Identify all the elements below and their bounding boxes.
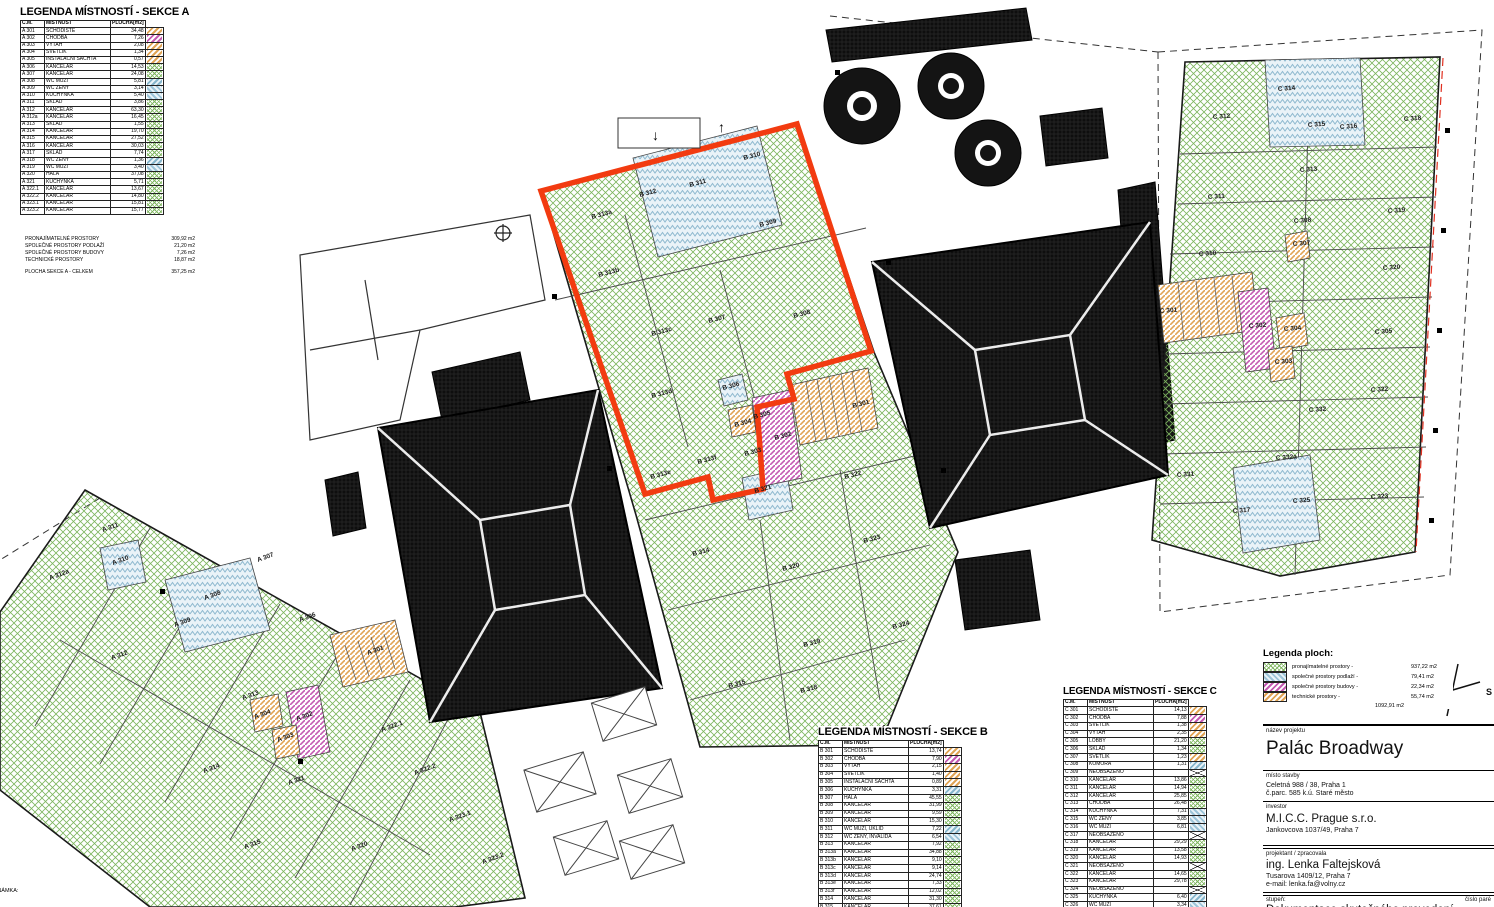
legend-c-title: LEGENDA MÍSTNOSTÍ - SEKCE C (1063, 686, 1217, 697)
room-row: A 315KANCELÁŘ27,52 (21, 136, 164, 143)
room-label: C 308 (1294, 217, 1312, 225)
room-row: B 313aKANCELÁŘ34,88 (819, 849, 962, 857)
col-plocha: PLOCHA[m2] (111, 21, 146, 28)
investor-address: Jankovcova 1037/49, Praha 7 (1266, 827, 1359, 834)
hatch-swatch (1190, 770, 1205, 777)
room-row: C 325KUCHYŇKA6,40 (1064, 894, 1207, 902)
room-row: A 313SKLAD1,55 (21, 121, 164, 128)
hatch-swatch (147, 143, 162, 149)
hatch-swatch (147, 136, 162, 142)
hatch-swatch (945, 896, 960, 903)
hatch-swatch (1190, 707, 1205, 714)
room-row: C 316WC MUŽI6,81 (1064, 824, 1207, 832)
hatch-swatch (945, 818, 960, 825)
designer-label: projektant / zpracovala (1266, 851, 1326, 857)
room-row: C 303SVĚTLÍK1,38 (1064, 722, 1207, 730)
room-row: A 321KUCHYŇKA5,71 (21, 179, 164, 186)
legend-section-a: LEGENDA MÍSTNOSTÍ - SEKCE A Č.M. MÍSTNOS… (20, 6, 189, 215)
room-row: C 304VÝTAH2,35 (1064, 730, 1207, 738)
hatch-swatch (945, 826, 960, 833)
room-row: B 313eKANCELÁŘ7,33 (819, 880, 962, 888)
north-label: S (1486, 687, 1492, 697)
legend-section-c: LEGENDA MÍSTNOSTÍ - SEKCE C Č.M. MÍSTNOS… (1063, 686, 1217, 907)
room-row: C 321NEOBSAZENO (1064, 863, 1207, 871)
room-label: C 332a (1276, 454, 1298, 462)
summary-total: PLOCHA SEKCE A - CELKEM357,25 m2 (25, 269, 195, 276)
hatch-swatch (1190, 723, 1205, 730)
room-row: A 312KANCELÁŘ63,30 (21, 107, 164, 114)
hatch-swatch (945, 881, 960, 888)
arrow-up-icon: ↑ (718, 119, 725, 135)
hatch-swatch (147, 172, 162, 178)
room-label: C 331 (1177, 471, 1195, 479)
room-row: C 308KOMORA1,31 (1064, 761, 1207, 769)
hatch-swatch (1190, 848, 1205, 855)
room-row: A 307KANCELÁŘ24,08 (21, 71, 164, 78)
area-legend: Legenda ploch: pronajímatelné prostory -… (1263, 648, 1453, 709)
room-row: A 303VÝTAH2,08 (21, 42, 164, 49)
area-legend-total: 1092,91 m2 (1375, 703, 1453, 709)
hatch-swatch (1190, 863, 1205, 870)
hatch-swatch (945, 857, 960, 864)
room-label: C 317 (1233, 507, 1251, 515)
hatch-swatch (945, 803, 960, 810)
hatch-swatch (1190, 879, 1205, 886)
hatch-swatch (1190, 894, 1205, 901)
room-label: C 303 (1275, 358, 1293, 366)
hatch-swatch (147, 57, 162, 63)
room-row: C 311KANCELÁŘ14,94 (1064, 785, 1207, 793)
room-row: A 320HALA37,08 (21, 171, 164, 178)
room-row: B 313fKANCELÁŘ12,02 (819, 888, 962, 896)
room-row: C 323KANCELÁŘ29,78 (1064, 878, 1207, 886)
arrow-down-icon: ↓ (652, 127, 659, 143)
room-row: B 302CHODBA7,90 (819, 755, 962, 763)
room-row: B 313dKANCELÁŘ24,74 (819, 872, 962, 880)
room-row: A 319WC MUŽI3,40 (21, 164, 164, 171)
room-row: C 305LOBBY21,20 (1064, 738, 1207, 746)
copy-number-label: číslo paré (1465, 897, 1491, 903)
room-label: C 312 (1213, 113, 1231, 121)
room-row: C 306SKLAD1,34 (1064, 746, 1207, 754)
hatch-swatch (147, 79, 162, 85)
area-legend-title: Legenda ploch: (1263, 648, 1453, 659)
room-row: C 307SVĚTLÍK1,23 (1064, 753, 1207, 761)
legend-b-title: LEGENDA MÍSTNOSTÍ - SEKCE B (818, 726, 988, 738)
room-label: C 322 (1371, 386, 1389, 394)
entrance-box (618, 118, 700, 148)
floor-plan-canvas: ↓ ↑ S A 311A 310A 312aA 307A 308A 309A 3… (0, 0, 1494, 907)
note-label: POZNÁMKA: (0, 888, 18, 894)
hatch-swatch (1263, 692, 1287, 702)
hatch-swatch (945, 795, 960, 802)
hatch-swatch (147, 165, 162, 171)
hatch-swatch (147, 129, 162, 135)
room-label: C 307 (1293, 240, 1311, 248)
room-row: A 323.1KANCELÁŘ15,81 (21, 200, 164, 207)
site-address-2: č.parc. 585 k.ú. Staré město (1266, 790, 1354, 797)
room-row: B 313cKANCELÁŘ9,14 (819, 865, 962, 873)
hatch-swatch (1190, 715, 1205, 722)
room-row: A 323.2KANCELÁŘ15,77 (21, 207, 164, 214)
legend-c-table: Č.M. MÍSTNOST PLOCHA[m2] C 301SCHODIŠTĚ1… (1063, 699, 1207, 907)
room-row: C 312KANCELÁŘ25,85 (1064, 792, 1207, 800)
room-row: C 302CHODBA7,88 (1064, 714, 1207, 722)
room-row: C 314KUCHYŇKA7,31 (1064, 808, 1207, 816)
area-legend-row: pronajímatelné prostory -937,22 m2 (1263, 662, 1453, 672)
room-label: C 304 (1284, 325, 1302, 333)
room-row: B 315KANCELÁŘ37,61 (819, 904, 962, 907)
room-label: C 302 (1249, 322, 1267, 330)
hatch-swatch (147, 114, 162, 120)
hatch-swatch (147, 150, 162, 156)
room-row: B 301SCHODIŠTĚ13,74 (819, 748, 962, 756)
site-label: místo stavby (1266, 773, 1300, 779)
hatch-swatch (1190, 887, 1205, 894)
hatch-swatch (945, 842, 960, 849)
hatch-swatch (147, 100, 162, 106)
hatch-swatch (147, 93, 162, 99)
hatch-swatch (1190, 832, 1205, 839)
room-row: A 310KUCHYŇKA5,40 (21, 92, 164, 99)
designer-email: e-mail: lenka.fa@volny.cz (1266, 881, 1345, 888)
summary-row: SPOLEČNÉ PROSTORY BUDOVY7,26 m2 (25, 250, 195, 257)
room-row: B 314KANCELÁŘ31,30 (819, 896, 962, 904)
hatch-swatch (1263, 672, 1287, 682)
room-row: C 318KANCELÁŘ29,29 (1064, 839, 1207, 847)
summary-row: SPOLEČNÉ PROSTORY PODLAŽÍ21,20 m2 (25, 243, 195, 250)
site-address-1: Celetná 988 / 38, Praha 1 (1266, 782, 1346, 789)
room-label: A 307 (256, 551, 275, 564)
hatch-swatch (147, 186, 162, 192)
room-label: C 311 (1208, 193, 1226, 201)
hatch-swatch (1190, 754, 1205, 761)
investor-name: M.I.C.C. Prague s.r.o. (1266, 813, 1377, 825)
room-row: B 313bKANCELÁŘ9,10 (819, 857, 962, 865)
hatch-swatch (945, 779, 960, 786)
hatch-swatch (945, 772, 960, 779)
hatch-swatch (1190, 801, 1205, 808)
hatch-swatch (1190, 738, 1205, 745)
room-row: A 304SVĚTLÍK1,34 (21, 49, 164, 56)
hatch-swatch (147, 28, 162, 34)
skylight-boxes (524, 687, 685, 880)
hatch-swatch (1263, 682, 1287, 692)
hatch-swatch (945, 873, 960, 880)
room-label: C 332 (1309, 406, 1327, 414)
hatch-swatch (1190, 871, 1205, 878)
hatch-swatch (1190, 816, 1205, 823)
room-row: A 312aKANCELÁŘ16,45 (21, 114, 164, 121)
room-row: C 301SCHODIŠTĚ14,13 (1064, 707, 1207, 715)
hatch-swatch (1190, 746, 1205, 753)
project-name-label: název projektu (1266, 728, 1305, 734)
designer-name: ing. Lenka Faltejsková (1266, 859, 1380, 871)
room-label: C 323 (1371, 493, 1389, 501)
room-row: B 310KANCELÁŘ15,30 (819, 818, 962, 826)
room-row: A 302CHODBA7,26 (21, 35, 164, 42)
legend-b-table: Č.M. MÍSTNOST PLOCHA[m2] B 301SCHODIŠTĚ1… (818, 740, 962, 907)
room-row: C 322KANCELÁŘ14,65 (1064, 870, 1207, 878)
room-row: A 314KANCELÁŘ19,70 (21, 128, 164, 135)
designer-address: Tusarova 1409/12, Praha 7 (1266, 873, 1351, 880)
roof-fan-vents (824, 53, 1021, 186)
hatch-swatch (1190, 777, 1205, 784)
hatch-swatch (147, 194, 162, 200)
room-label: C 305 (1375, 328, 1393, 336)
room-row: B 309KANCELÁŘ9,59 (819, 810, 962, 818)
room-label: C 319 (1388, 207, 1406, 215)
hatch-swatch (1190, 840, 1205, 847)
hatch-swatch (1190, 762, 1205, 769)
hatch-swatch (1190, 731, 1205, 738)
room-row: B 304SVĚTLÍK1,40 (819, 771, 962, 779)
hatch-swatch (1190, 809, 1205, 816)
room-row: A 308WC MUŽI5,81 (21, 78, 164, 85)
room-row: B 308KANCELÁŘ31,99 (819, 802, 962, 810)
hatch-swatch (945, 865, 960, 872)
room-row: A 317SKLAD7,74 (21, 150, 164, 157)
room-label: C 313 (1300, 166, 1318, 174)
room-row: C 309NEOBSAZENO (1064, 769, 1207, 777)
legend-a-table: Č.M. MÍSTNOST PLOCHA[m2] A 301SCHODIŠTĚ3… (20, 20, 164, 215)
hatch-swatch (147, 50, 162, 56)
section-a-summary: PRONAJÍMATELNÉ PROSTORY309,92 m2SPOLEČNÉ… (25, 236, 195, 276)
hatch-swatch (147, 71, 162, 77)
hatch-swatch (945, 787, 960, 794)
hatch-swatch (945, 850, 960, 857)
room-row: C 320KANCELÁŘ14,93 (1064, 855, 1207, 863)
room-label: C 301 (1160, 307, 1178, 315)
room-label: C 314 (1278, 85, 1296, 93)
room-label: C 325 (1293, 497, 1311, 505)
room-row: C 315WC ŽENY3,85 (1064, 816, 1207, 824)
summary-row: PRONAJÍMATELNÉ PROSTORY309,92 m2 (25, 236, 195, 243)
room-row: C 310KANCELÁŘ13,86 (1064, 777, 1207, 785)
summary-row: TECHNICKÉ PROSTORY18,87 m2 (25, 257, 195, 264)
hatch-swatch (147, 35, 162, 41)
hatch-swatch (945, 756, 960, 763)
room-row: B 313KANCELÁŘ7,92 (819, 841, 962, 849)
hatch-swatch (147, 179, 162, 185)
col-cm: Č.M. (21, 21, 45, 28)
legend-a-title: LEGENDA MÍSTNOSTÍ - SEKCE A (20, 6, 189, 18)
hatch-swatch (147, 107, 162, 113)
room-row: B 311WC MUŽI, ÚKLID7,22 (819, 826, 962, 834)
room-row: A 316KANCELÁŘ30,03 (21, 143, 164, 150)
hatch-swatch (1190, 824, 1205, 831)
hatch-swatch (147, 201, 162, 207)
room-label: C 310 (1199, 250, 1217, 258)
hatch-swatch (147, 43, 162, 49)
room-row: B 303VÝTAH2,15 (819, 763, 962, 771)
room-row: A 322.1KANCELÁŘ13,67 (21, 186, 164, 193)
investor-label: investor (1266, 804, 1287, 810)
area-legend-row: společné prostory budovy -22,34 m2 (1263, 682, 1453, 692)
hatch-swatch (1190, 793, 1205, 800)
hatch-swatch (147, 86, 162, 92)
room-row: A 311SKLAD3,86 (21, 100, 164, 107)
room-row: A 322.2KANCELÁŘ14,80 (21, 193, 164, 200)
room-row: C 313CHODBA26,48 (1064, 800, 1207, 808)
hatch-swatch (147, 158, 162, 164)
room-label: C 318 (1404, 115, 1422, 123)
hatch-swatch (147, 208, 162, 214)
room-row: B 305INSTALAČNÍ ŠACHTA0,89 (819, 779, 962, 787)
room-row: B 312WC ŽENY, INVALIDA6,54 (819, 833, 962, 841)
room-row: B 307HALA45,55 (819, 794, 962, 802)
room-row: A 309WC ŽENY3,14 (21, 85, 164, 92)
room-label: C 320 (1383, 264, 1401, 272)
room-row: C 317NEOBSAZENO (1064, 831, 1207, 839)
room-row: C 326WC MUŽI3,34 (1064, 902, 1207, 907)
legend-section-b: LEGENDA MÍSTNOSTÍ - SEKCE B Č.M. MÍSTNOS… (818, 726, 988, 907)
project-name: Palác Broadway (1266, 738, 1403, 760)
hatch-swatch (1190, 855, 1205, 862)
room-row: A 318WC ŽENY1,36 (21, 157, 164, 164)
col-mistnost: MÍSTNOST (45, 21, 111, 28)
area-legend-row: společné prostory podlaží -79,41 m2 (1263, 672, 1453, 682)
hatch-swatch (1263, 662, 1287, 672)
hatch-swatch (945, 748, 960, 755)
hatch-swatch (1190, 902, 1205, 907)
hatch-swatch (945, 889, 960, 896)
hatch-swatch (945, 764, 960, 771)
room-row: B 306KUCHYŇKA3,31 (819, 787, 962, 795)
room-row: A 306KANCELÁŘ14,53 (21, 64, 164, 71)
room-row: C 319KANCELÁŘ13,58 (1064, 847, 1207, 855)
stage-label: stupeň: (1266, 897, 1286, 903)
hatch-swatch (945, 834, 960, 841)
hatch-swatch (945, 811, 960, 818)
hatch-swatch (147, 122, 162, 128)
room-label: C 316 (1340, 123, 1358, 131)
area-legend-row: technické prostory -55,74 m2 (1263, 692, 1453, 702)
room-row: C 324NEOBSAZENO (1064, 886, 1207, 894)
hatch-swatch (147, 64, 162, 70)
hatch-swatch (1190, 785, 1205, 792)
title-block: název projektu Palác Broadway místo stav… (1263, 724, 1494, 907)
room-label: C 315 (1308, 121, 1326, 129)
room-row: A 301SCHODIŠTĚ34,48 (21, 28, 164, 35)
room-row: A 305INSTALAČNÍ ŠACHTA0,57 (21, 56, 164, 63)
